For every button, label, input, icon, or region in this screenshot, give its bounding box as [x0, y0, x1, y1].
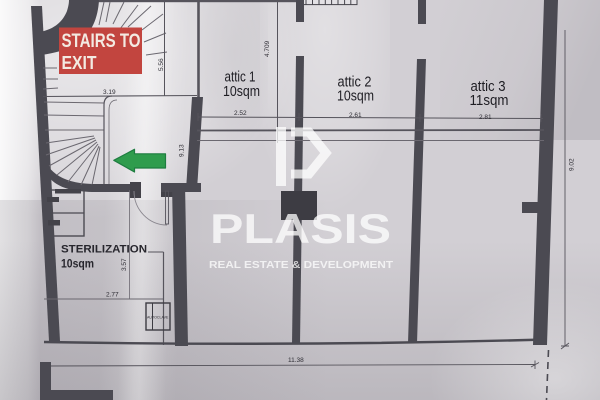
svg-text:AUTOCLAVE: AUTOCLAVE — [147, 316, 169, 320]
svg-text:11sqm: 11sqm — [470, 93, 509, 109]
svg-text:2.52: 2.52 — [234, 110, 247, 117]
svg-text:9.02: 9.02 — [569, 158, 576, 171]
svg-text:2.77: 2.77 — [106, 292, 119, 299]
svg-text:PLASIS: PLASIS — [210, 205, 391, 252]
svg-text:5.56: 5.56 — [158, 58, 165, 71]
svg-text:10sqm: 10sqm — [61, 259, 94, 271]
svg-text:9.13: 9.13 — [179, 144, 186, 157]
svg-text:10sqm: 10sqm — [337, 89, 374, 105]
svg-text:2.81: 2.81 — [479, 114, 492, 121]
svg-text:STAIRS TO: STAIRS TO — [62, 31, 141, 52]
svg-text:11.38: 11.38 — [288, 357, 304, 364]
svg-text:REAL ESTATE & DEVELOPMENT: REAL ESTATE & DEVELOPMENT — [209, 259, 394, 271]
svg-text:3.19: 3.19 — [103, 89, 116, 96]
svg-text:STERILIZATION: STERILIZATION — [61, 244, 147, 256]
svg-text:EXIT: EXIT — [62, 53, 97, 73]
svg-text:3.57: 3.57 — [121, 258, 128, 271]
svg-text:4.709: 4.709 — [264, 40, 271, 57]
svg-text:2.61: 2.61 — [349, 112, 362, 119]
svg-text:10sqm: 10sqm — [223, 84, 260, 100]
